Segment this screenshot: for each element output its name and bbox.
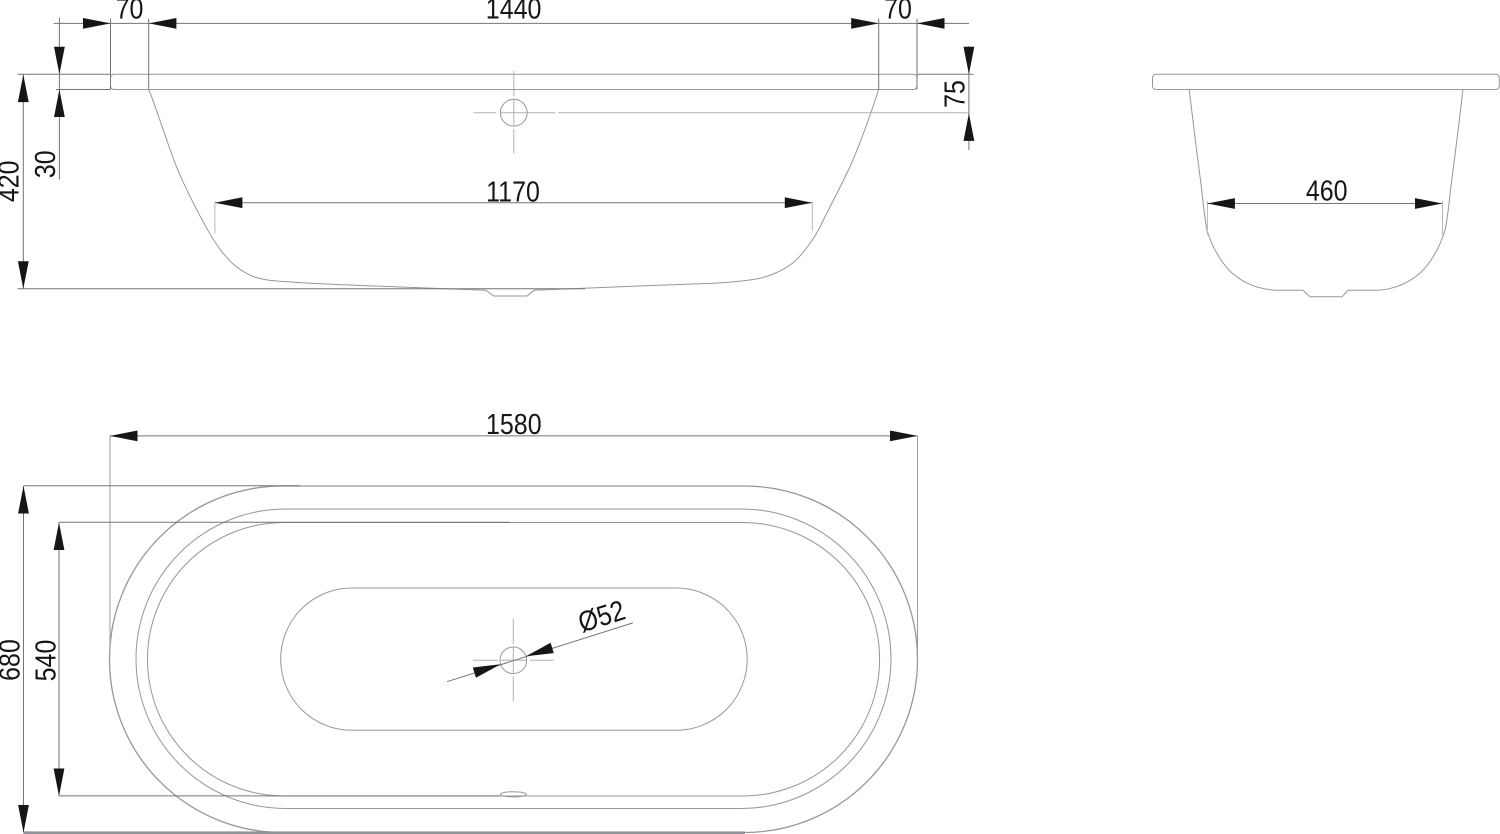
svg-text:1440: 1440 <box>486 0 542 25</box>
svg-text:30: 30 <box>30 150 62 178</box>
svg-text:1170: 1170 <box>486 176 540 208</box>
svg-text:420: 420 <box>0 160 25 202</box>
svg-text:540: 540 <box>30 640 62 682</box>
svg-text:75: 75 <box>939 80 971 108</box>
svg-text:680: 680 <box>0 639 26 681</box>
svg-text:1580: 1580 <box>486 408 542 440</box>
svg-text:70: 70 <box>884 0 912 25</box>
svg-text:460: 460 <box>1306 175 1348 207</box>
svg-text:70: 70 <box>116 0 144 25</box>
